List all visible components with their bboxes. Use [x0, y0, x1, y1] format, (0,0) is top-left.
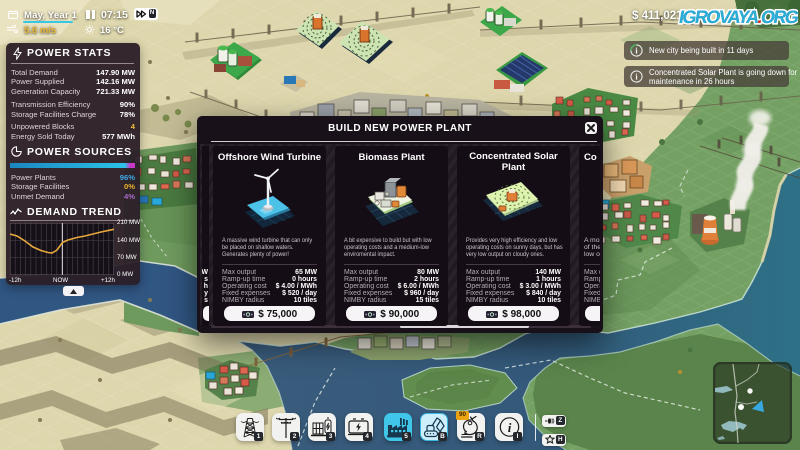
svg-text:i: i: [635, 73, 638, 82]
svg-text:i: i: [635, 47, 638, 56]
svg-text:i: i: [508, 420, 512, 435]
svg-text:IGROVAYA.ORG: IGROVAYA.ORG: [678, 7, 798, 27]
